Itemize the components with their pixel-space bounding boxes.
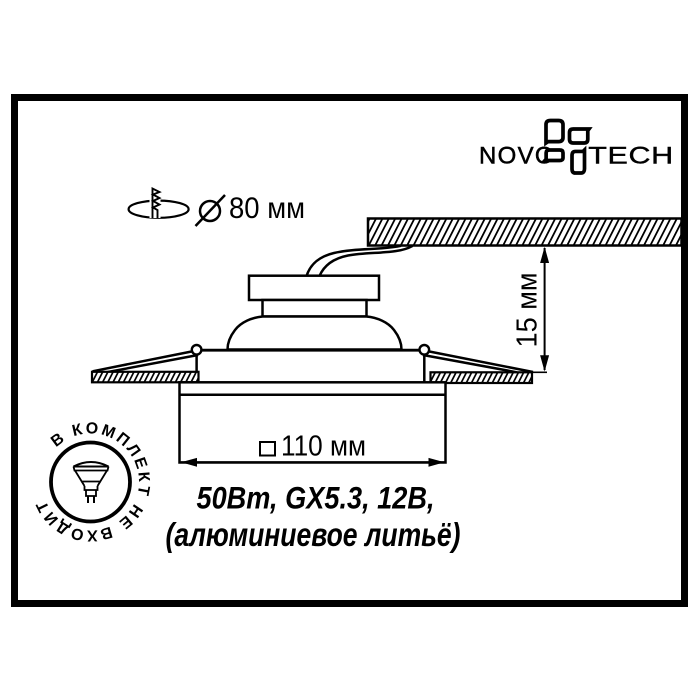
svg-text:50Вт, GX5.3, 12В,: 50Вт, GX5.3, 12В, bbox=[197, 480, 435, 516]
svg-text:110 мм: 110 мм bbox=[281, 431, 366, 463]
svg-text:(алюминиевое литьё): (алюминиевое литьё) bbox=[166, 517, 461, 554]
svg-text:15 мм: 15 мм bbox=[512, 273, 544, 348]
svg-text:NOVO: NOVO bbox=[479, 143, 555, 170]
svg-text:80 мм: 80 мм bbox=[229, 192, 305, 225]
svg-text:TECH: TECH bbox=[588, 142, 673, 169]
